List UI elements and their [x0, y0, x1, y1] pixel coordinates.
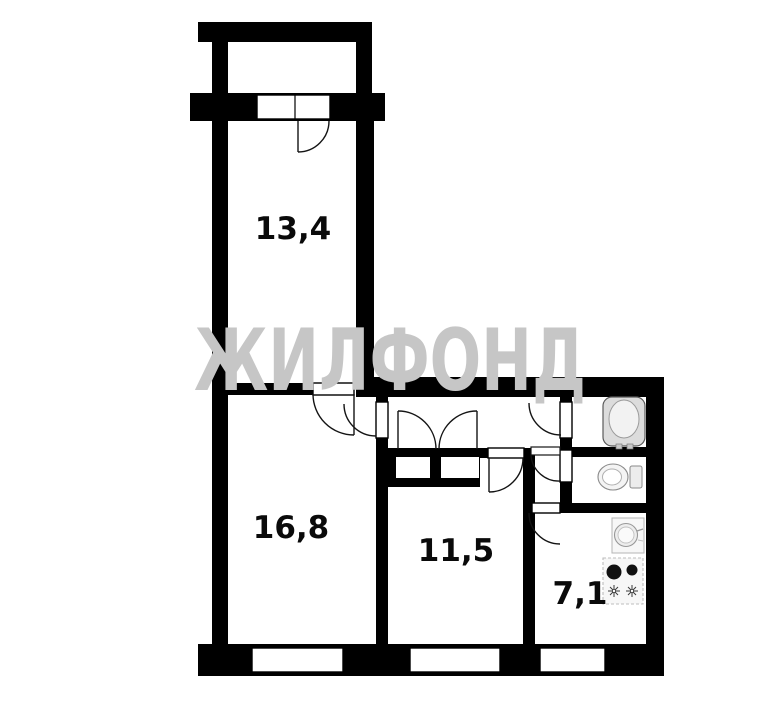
- balcony-parapet-wall: [198, 22, 372, 42]
- bathtub-icon: [603, 397, 645, 449]
- stove-icon: [603, 558, 643, 604]
- door-opening-toilet: [560, 450, 572, 482]
- kitchen-area-label: 7,1: [553, 576, 608, 612]
- room115-right-wall: [523, 448, 535, 644]
- labels-layer: 13,4 16,8 11,5 7,1: [253, 211, 608, 612]
- toilet-kitchen-wall: [560, 503, 646, 513]
- balcony-right-wall: [356, 42, 372, 93]
- fixtures-layer: [598, 397, 645, 604]
- floor-plan: ЖИЛФОНД 13,4 16,8 11,5 7,1: [0, 0, 770, 708]
- closet-cell-left: [396, 457, 430, 478]
- room168-area-label: 16,8: [253, 510, 330, 546]
- door-opening-kitchen: [532, 503, 560, 513]
- room115-area-label: 11,5: [418, 533, 495, 569]
- bath-toilet-wall: [572, 447, 646, 457]
- balcony-door: [298, 121, 329, 152]
- window-room168: [252, 648, 343, 672]
- balcony-window: [257, 95, 330, 119]
- sink-icon: [612, 518, 644, 553]
- closet-double-doors: [398, 411, 477, 449]
- window-kitchen: [540, 648, 605, 672]
- right-exterior-wall: [646, 397, 664, 644]
- door-hall-room115: [489, 458, 523, 492]
- door-hall-toilet: [531, 447, 561, 481]
- agency-watermark: ЖИЛФОНД: [194, 311, 586, 411]
- toilet-icon: [598, 464, 642, 490]
- window-room115: [410, 648, 500, 672]
- door-panel-room115: [488, 448, 524, 458]
- closet-cell-right: [441, 457, 479, 478]
- floor-plan-page: ЖИЛФОНД 13,4 16,8 11,5 7,1: [0, 0, 770, 708]
- room134-area-label: 13,4: [255, 211, 332, 247]
